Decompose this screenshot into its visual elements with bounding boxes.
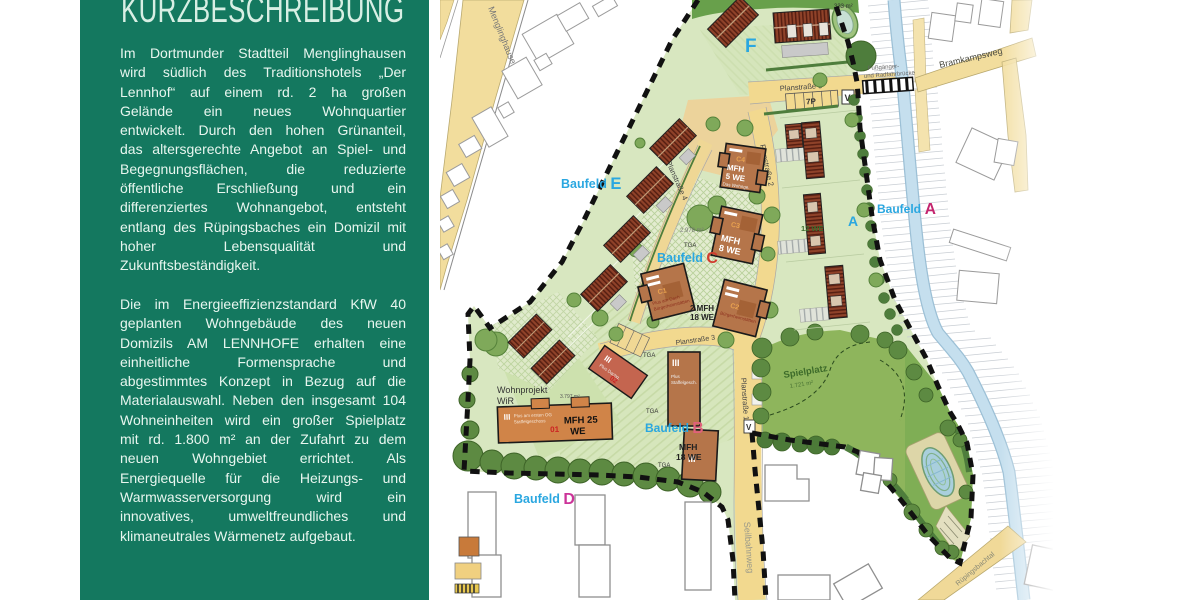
svg-text:A: A <box>848 213 858 229</box>
svg-text:Baufeld A: Baufeld A <box>877 201 936 218</box>
svg-text:III: III <box>672 358 680 368</box>
svg-text:TGA: TGA <box>658 463 670 469</box>
svg-text:01: 01 <box>550 425 560 434</box>
svg-text:Baufeld C: Baufeld C <box>657 250 718 267</box>
svg-text:3.797 m²: 3.797 m² <box>560 394 580 400</box>
svg-text:TGA: TGA <box>684 243 696 249</box>
svg-text:Baufeld E: Baufeld E <box>561 175 621 193</box>
svg-text:Baufeld D: Baufeld D <box>514 491 575 508</box>
svg-text:F: F <box>745 36 757 57</box>
svg-text:WiR: WiR <box>497 396 514 406</box>
svg-text:7P: 7P <box>806 97 817 107</box>
svg-text:Baufeld B: Baufeld B <box>645 420 704 437</box>
svg-text:V: V <box>746 423 752 432</box>
svg-text:2 MFH: 2 MFH <box>690 304 714 313</box>
svg-text:12 WE: 12 WE <box>801 224 824 233</box>
svg-text:Fußgänger-: Fußgänger- <box>868 64 900 72</box>
svg-text:Wohnprojekt: Wohnprojekt <box>497 385 548 395</box>
svg-text:TGA: TGA <box>646 409 658 415</box>
svg-text:Plus: Plus <box>671 374 681 379</box>
svg-text:Staffelgesch.: Staffelgesch. <box>671 380 697 385</box>
svg-text:MFH 25: MFH 25 <box>564 414 599 426</box>
svg-text:WE: WE <box>570 426 586 438</box>
svg-text:C4: C4 <box>736 156 746 164</box>
svg-text:18 WE: 18 WE <box>676 452 702 462</box>
svg-text:2.978 m²: 2.978 m² <box>680 228 704 234</box>
svg-text:III: III <box>504 413 511 422</box>
svg-text:MFH: MFH <box>679 442 697 452</box>
svg-text:18 WE: 18 WE <box>690 313 715 322</box>
svg-text:TGA: TGA <box>643 353 655 359</box>
